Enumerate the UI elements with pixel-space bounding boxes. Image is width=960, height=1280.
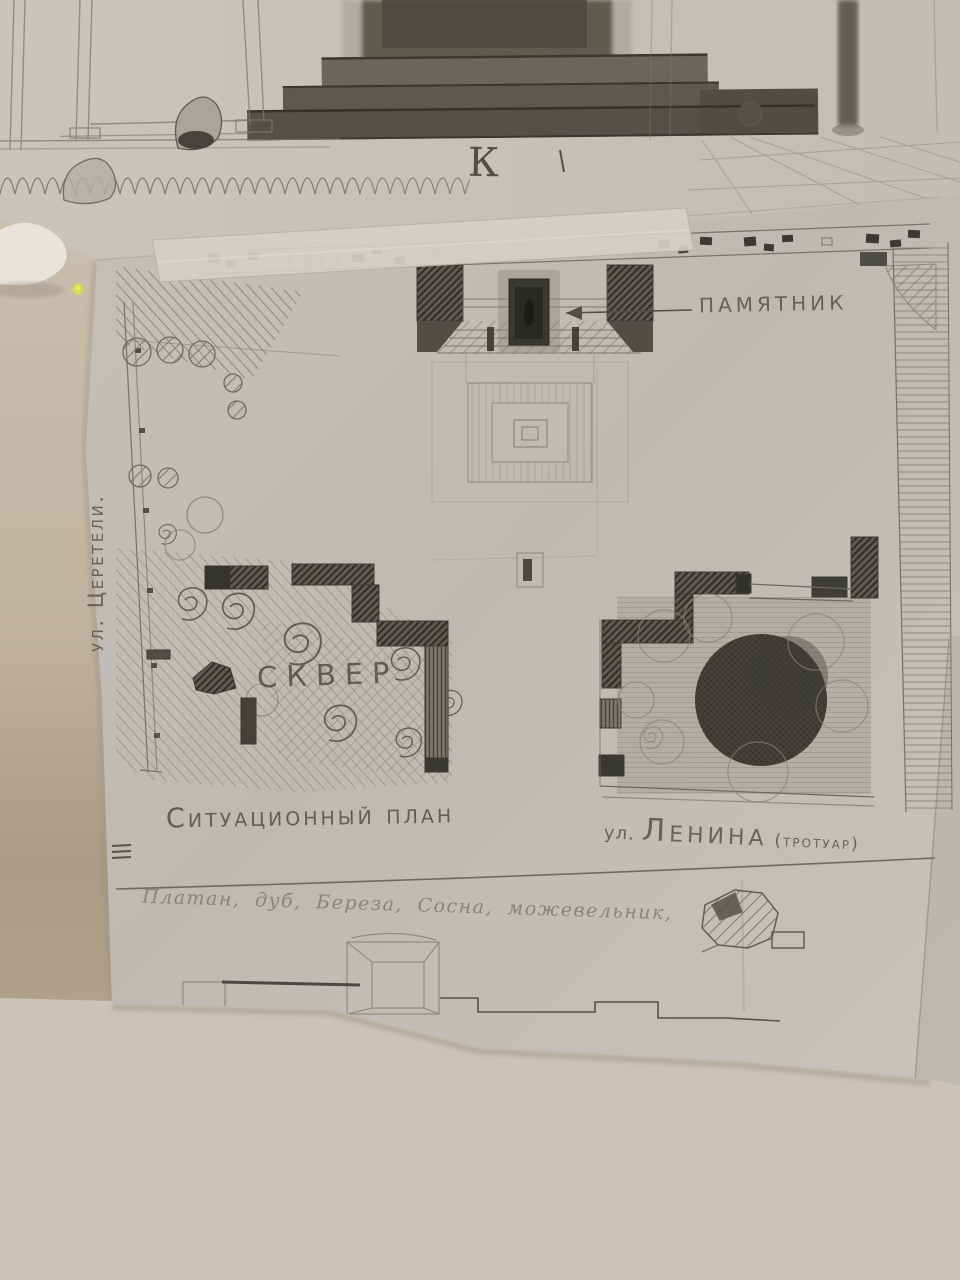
pole-sketch [838, 0, 858, 126]
sketch-drawing [0, 0, 960, 1280]
monument-niche [417, 265, 653, 354]
plan-caption: Ситуационный план [166, 798, 455, 834]
street-label-tsereteli: ул. Церетели. [84, 494, 108, 652]
monument-column-elevation [362, 0, 612, 60]
street-label-lenina-prefix: ул. [603, 822, 635, 844]
plan-sheet [86, 195, 960, 1086]
photo-of-pencil-site-plan: К ПАМЯТНИК ул. Церетели. СКВЕР Ситуацион… [0, 0, 960, 1280]
street-label-lenina-suffix: (тротуар) [774, 831, 860, 855]
street-label-lenina-name: Ленина [641, 812, 768, 853]
monument-label: ПАМЯТНИК [699, 290, 848, 317]
skver-label: СКВЕР [256, 656, 399, 695]
yellow-highlight-dot [73, 284, 84, 295]
letter-k-annotation: К [468, 140, 500, 187]
